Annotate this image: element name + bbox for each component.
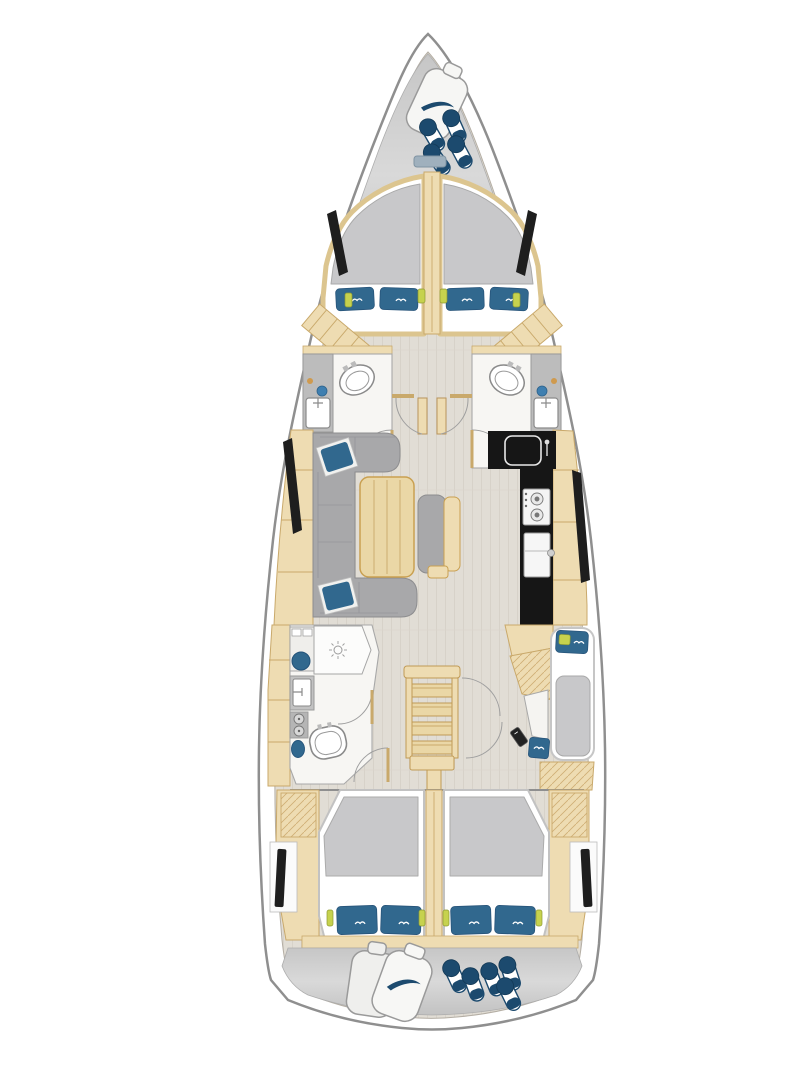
bench-seat [418, 495, 446, 573]
reading-light-icon [327, 910, 333, 926]
foot-locker-strip [302, 936, 578, 948]
pillow-icon [555, 630, 588, 654]
pillow-icon [446, 287, 485, 310]
stair-base [410, 756, 454, 770]
pillow-icon [489, 287, 528, 311]
head-wall [472, 346, 561, 354]
reading-light-icon [513, 293, 520, 307]
sink-bowl-icon [537, 386, 547, 396]
head-wall [303, 346, 392, 354]
pillow-icon [335, 287, 374, 311]
soap-icon [307, 378, 313, 384]
side-lockers-port-aft [268, 625, 290, 786]
pillow-icon [380, 287, 419, 310]
fridge-icon [524, 533, 555, 577]
door-leaf [437, 398, 446, 434]
bench-foot-wood [428, 566, 448, 578]
cushion-icon [528, 737, 550, 759]
wardrobe-hatch [281, 793, 316, 837]
pillow-icon [337, 905, 378, 934]
sink-bowl-icon [317, 386, 327, 396]
bidet-icon [292, 741, 305, 758]
stair-rail [452, 678, 458, 758]
bow-hatch [414, 156, 446, 167]
reading-light-icon [536, 910, 542, 926]
aft-berth-starboard [444, 790, 549, 940]
single-berth [551, 628, 594, 760]
pillow-icon [451, 905, 492, 934]
wardrobe-hatch [552, 793, 587, 837]
reading-light-icon [345, 293, 352, 307]
stair-top [404, 666, 460, 678]
pillow-icon [381, 905, 422, 934]
reading-light-icon [443, 910, 449, 926]
soap-icon [551, 378, 557, 384]
shelf-item [292, 629, 301, 636]
locker-wood [540, 762, 594, 790]
yacht-floor-plan [0, 0, 811, 1080]
mattress [450, 797, 544, 876]
pillow-icon [495, 905, 536, 934]
mattress [556, 676, 590, 756]
stove-icon [523, 489, 550, 525]
round-rug-icon [292, 652, 310, 670]
head-aft-port [268, 625, 379, 786]
reading-light-icon [418, 289, 425, 303]
washer-controls-icon [290, 712, 308, 738]
bench-back-wood [444, 497, 460, 571]
aft-berth-port [319, 790, 424, 940]
shelf-item [303, 629, 312, 636]
door-leaf [418, 398, 427, 434]
mattress [324, 797, 418, 876]
reading-light-icon [419, 910, 425, 926]
stair-rail [406, 678, 412, 758]
stair-column [427, 770, 441, 792]
reading-light-icon [440, 289, 447, 303]
